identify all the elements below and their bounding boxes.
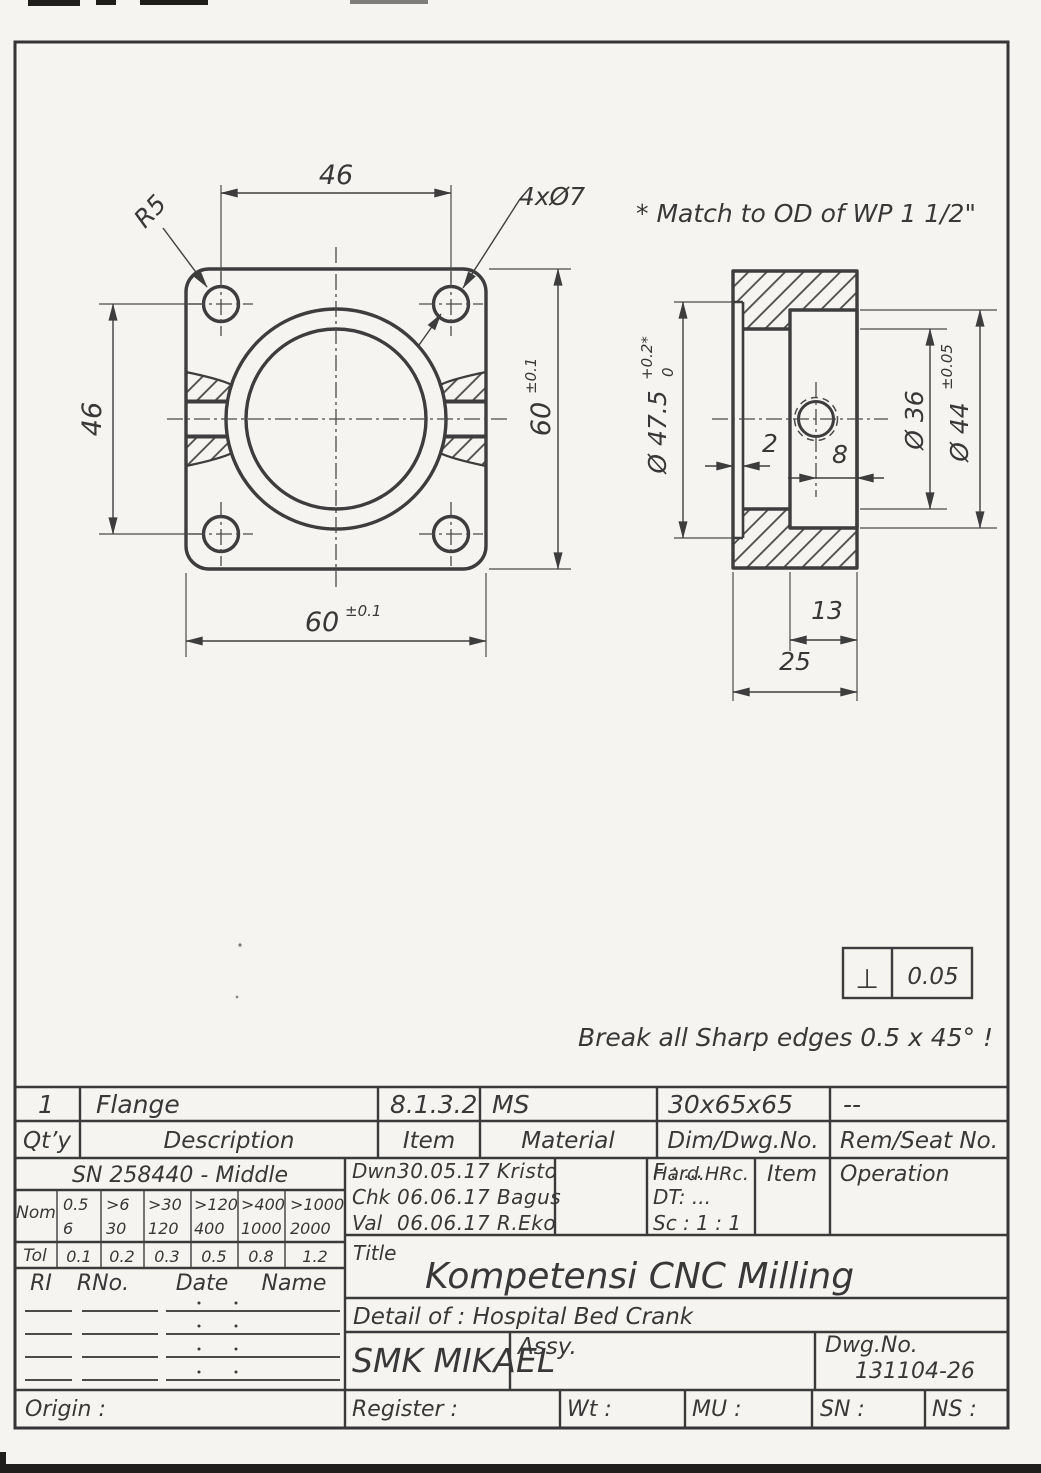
dim-boss-length: 13 xyxy=(811,596,843,625)
hard-hrc-header: Hard.HRc. xyxy=(653,1163,749,1185)
svg-text:0.1: 0.1 xyxy=(66,1247,91,1266)
dim-left-height: 46 xyxy=(77,402,108,436)
nom-label: Nom xyxy=(16,1203,56,1223)
description-value: Flange xyxy=(96,1090,180,1119)
item-value: 8.1.3.2 xyxy=(390,1090,477,1119)
dwg-no-label: Dwg.No. xyxy=(825,1333,918,1358)
sc-field: Sc : 1 : 1 xyxy=(653,1211,741,1235)
qty-header: Qt’y xyxy=(23,1128,71,1154)
break-edges-note: Break all Sharp edges 0.5 x 45° ! xyxy=(578,1023,993,1052)
val-label: Val xyxy=(352,1211,383,1235)
drawing-title: Kompetensi CNC Milling xyxy=(425,1256,854,1297)
svg-text:400: 400 xyxy=(194,1219,225,1238)
detail-of: Detail of : Hospital Bed Crank xyxy=(353,1304,695,1330)
assy-label: Assy. xyxy=(516,1334,577,1360)
svg-text:6: 6 xyxy=(63,1219,73,1238)
wt-label: Wt : xyxy=(567,1397,612,1422)
name-header: Name xyxy=(262,1271,327,1296)
svg-text:60: 60 xyxy=(526,402,557,436)
dim-inner-bore: Ø 36 xyxy=(900,390,929,450)
dwn-label: Dwn xyxy=(352,1159,396,1183)
dim-top-width: 46 xyxy=(319,160,353,191)
svg-text:30: 30 xyxy=(106,1219,126,1238)
svg-text:1.2: 1.2 xyxy=(302,1247,327,1266)
svg-text:±0.1: ±0.1 xyxy=(345,602,381,620)
mu-label: MU : xyxy=(692,1397,742,1422)
dt-field: DT: ... xyxy=(653,1185,711,1209)
tol-table-values: 0.1 0.2 0.3 0.5 0.8 1.2 xyxy=(66,1247,327,1266)
corner-radius-label: R5 xyxy=(128,189,172,233)
engineering-drawing: 46 46 60 ±0.1 60 ±0.1 4xØ7 R5 xyxy=(0,0,1041,1473)
rem-header: Rem/Seat No. xyxy=(840,1128,998,1154)
side-view: Ø 47.5 +0.2* 0 2 8 Ø 36 Ø 44 ±0.05 13 25 xyxy=(638,271,997,701)
perpendicularity-frame: ⊥ 0.05 xyxy=(843,948,972,998)
side-centerlines xyxy=(712,382,888,497)
dim-bottom-width: 60 ±0.1 xyxy=(305,602,382,638)
svg-text:>120: >120 xyxy=(194,1195,238,1214)
svg-text:>400: >400 xyxy=(241,1195,285,1214)
svg-text:Ø 44: Ø 44 xyxy=(945,402,974,462)
operation-header: Operation xyxy=(840,1162,949,1187)
svg-text:120: 120 xyxy=(148,1219,179,1238)
dim-dwg-value: 30x65x65 xyxy=(668,1090,793,1119)
dwg-no-value: 131104-26 xyxy=(855,1359,975,1384)
chk-value: 06.06.17 Bagus xyxy=(397,1185,561,1209)
svg-text:1000: 1000 xyxy=(241,1219,282,1238)
revision-lines xyxy=(25,1311,340,1380)
tol-table-ranges: 0.5 6 >6 30 >30 120 >120 400 >400 1000 >… xyxy=(63,1195,344,1238)
rno-header: RNo. xyxy=(77,1271,129,1296)
svg-text:0.2: 0.2 xyxy=(109,1247,134,1266)
material-value: MS xyxy=(492,1090,530,1119)
title-label: Title xyxy=(353,1241,396,1265)
qty-value: 1 xyxy=(38,1090,54,1119)
holes-callout: 4xØ7 xyxy=(519,182,585,211)
svg-text:+0.2*: +0.2* xyxy=(638,336,656,380)
svg-text:0.5: 0.5 xyxy=(63,1195,88,1214)
title-block: 1 Flange 8.1.3.2 MS 30x65x65 -- Qt’y Des… xyxy=(15,1087,1008,1428)
item-header: Item xyxy=(403,1128,455,1154)
svg-text:>6: >6 xyxy=(106,1195,130,1214)
perpendicularity-icon: ⊥ xyxy=(855,964,879,995)
front-view: 46 46 60 ±0.1 60 ±0.1 4xØ7 R5 xyxy=(77,160,585,657)
svg-text:>30: >30 xyxy=(148,1195,182,1214)
ns-label: NS : xyxy=(932,1397,977,1422)
svg-text:0: 0 xyxy=(659,367,677,377)
dim-dwg-header: Dim/Dwg.No. xyxy=(667,1128,818,1154)
dim-hole-offset: 8 xyxy=(832,440,848,469)
standard-label: SN 258440 - Middle xyxy=(72,1163,288,1188)
svg-text:0.8: 0.8 xyxy=(248,1247,273,1266)
match-note: * Match to OD of WP 1 1/2" xyxy=(636,199,976,228)
tol-label: Tol xyxy=(23,1246,47,1266)
svg-text:±0.05: ±0.05 xyxy=(938,344,956,390)
chk-label: Chk xyxy=(352,1185,392,1209)
svg-text:0.3: 0.3 xyxy=(154,1247,179,1266)
ri-header: RI xyxy=(30,1271,52,1296)
rem-value: -- xyxy=(843,1090,861,1119)
svg-text:0.5: 0.5 xyxy=(201,1247,226,1266)
dim-right-height: 60 ±0.1 xyxy=(522,358,557,437)
dim-total-length: 25 xyxy=(779,647,811,676)
material-header: Material xyxy=(521,1128,615,1154)
val-value: 06.06.17 R.Eko xyxy=(397,1211,556,1235)
sn-label: SN : xyxy=(820,1397,865,1422)
svg-text:2000: 2000 xyxy=(290,1219,331,1238)
description-header: Description xyxy=(164,1128,295,1154)
perpendicularity-value: 0.05 xyxy=(907,964,958,990)
revision-dots xyxy=(198,1302,238,1374)
date-header: Date xyxy=(176,1271,229,1296)
svg-text:Ø 47.5: Ø 47.5 xyxy=(643,390,672,474)
drawing-sheet: 46 46 60 ±0.1 60 ±0.1 4xØ7 R5 xyxy=(0,0,1041,1473)
dwn-value: 30.05.17 Kristo xyxy=(397,1159,557,1183)
svg-text:>1000: >1000 xyxy=(290,1195,344,1214)
dim-lip: 2 xyxy=(762,429,778,458)
item-col-header: Item xyxy=(767,1162,817,1187)
register-label: Register : xyxy=(352,1397,458,1422)
dim-bore: Ø 47.5 +0.2* 0 xyxy=(638,336,677,475)
dim-boss: Ø 44 ±0.05 xyxy=(938,344,974,463)
svg-text:±0.1: ±0.1 xyxy=(522,358,540,394)
front-extension-lines xyxy=(99,185,571,657)
svg-text:60: 60 xyxy=(305,607,339,638)
origin-label: Origin : xyxy=(25,1397,106,1422)
front-centerlines xyxy=(167,247,507,591)
